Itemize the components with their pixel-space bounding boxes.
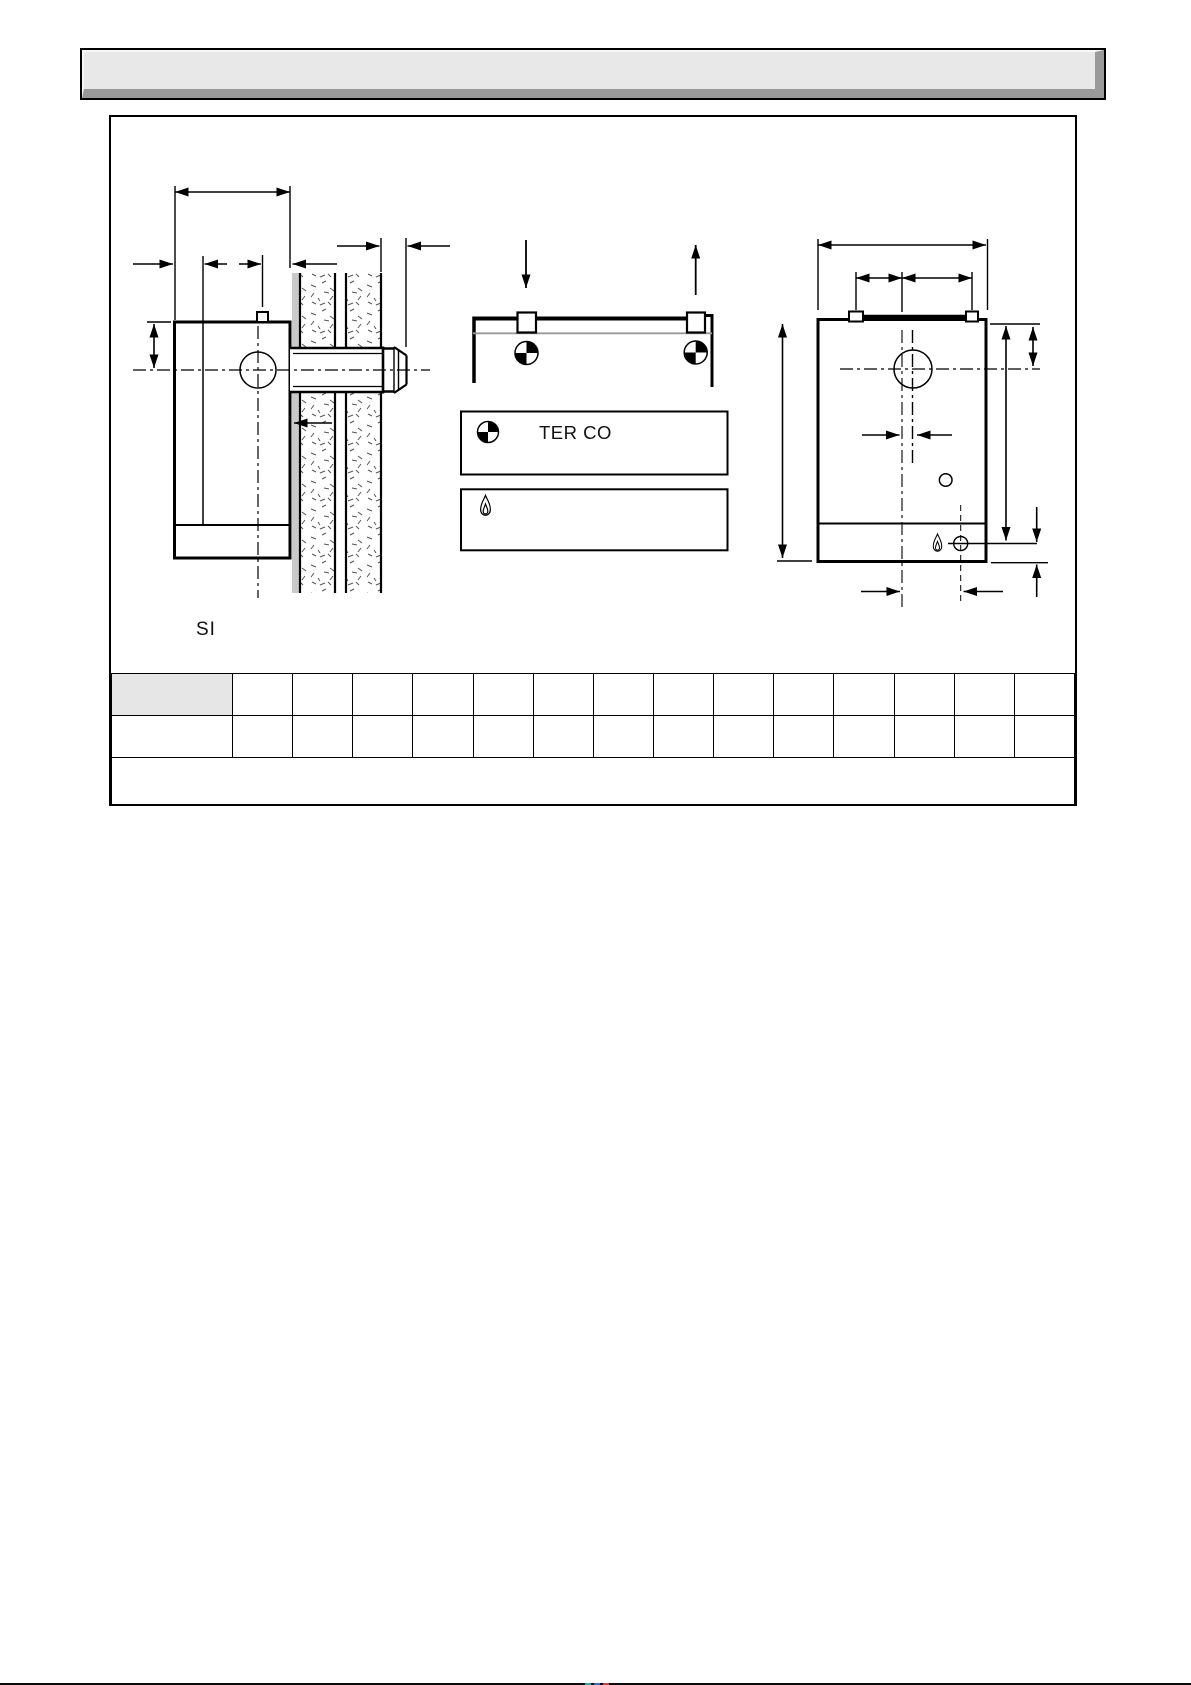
table-cell [834,716,894,758]
table-cell [714,716,774,758]
table-cell [533,674,593,716]
table-cell [473,716,533,758]
dimension-table [111,673,1075,806]
table-cell [112,716,233,758]
table-cell [894,716,954,758]
banner-bevel [82,50,1104,98]
table-cell [954,716,1014,758]
table-cell [774,716,834,758]
table-cell [353,716,413,758]
table-cell [413,674,473,716]
table-cell [293,674,353,716]
legend-text: TER CO [539,424,612,443]
document-page: SI TER CO [0,0,1191,1685]
table-cell [353,674,413,716]
table-cell [1014,716,1074,758]
table-cell [112,674,233,716]
table-cell [1014,674,1074,716]
table-cell [233,716,293,758]
table-cell [473,674,533,716]
table-cell [834,674,894,716]
table-cell [293,716,353,758]
table-cell [233,674,293,716]
table-cell [593,674,653,716]
table-cell [112,758,1075,806]
figure-label-si: SI [196,620,216,639]
table-cell [413,716,473,758]
title-banner [80,48,1106,100]
table-cell [714,674,774,716]
table-cell [774,674,834,716]
table-cell [653,716,713,758]
table-cell [593,716,653,758]
table-cell [533,716,593,758]
table-cell [653,674,713,716]
table-cell [894,674,954,716]
table-cell [954,674,1014,716]
